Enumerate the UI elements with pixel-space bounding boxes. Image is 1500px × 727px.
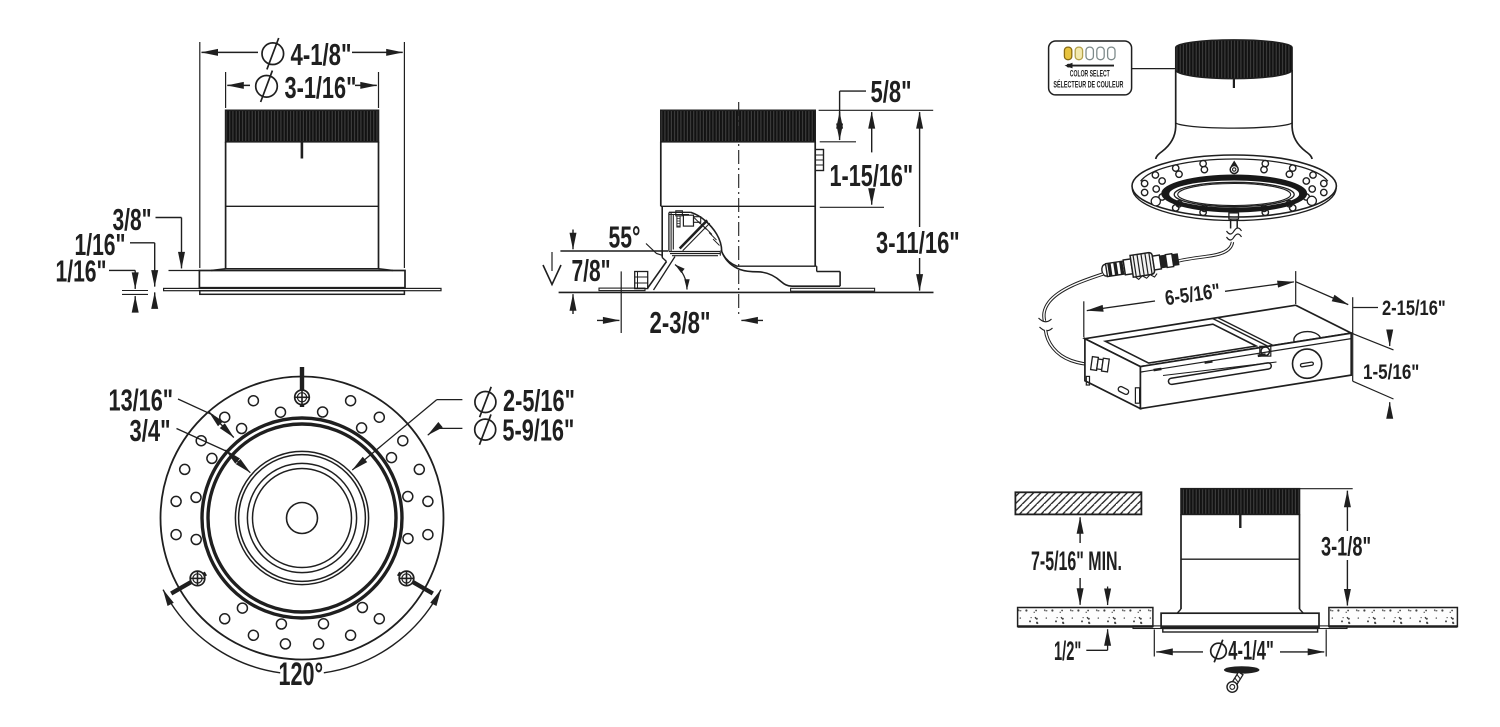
svg-text:3-11/16": 3-11/16" [876, 225, 960, 260]
svg-text:1-5/16": 1-5/16" [1363, 361, 1419, 384]
svg-text:1/16": 1/16" [56, 254, 107, 289]
svg-text:3-1/16": 3-1/16" [285, 70, 357, 105]
svg-text:7/8": 7/8" [572, 253, 611, 288]
svg-text:COLOR SELECT: COLOR SELECT [1070, 69, 1110, 80]
svg-text:4-1/4": 4-1/4" [1228, 636, 1274, 666]
svg-text:3-1/8": 3-1/8" [1321, 532, 1371, 562]
svg-text:4-1/8": 4-1/8" [291, 37, 352, 72]
svg-text:2-15/16": 2-15/16" [1382, 297, 1446, 320]
svg-text:SÉLECTEUR DE COULEUR: SÉLECTEUR DE COULEUR [1053, 80, 1123, 91]
svg-text:7-5/16" MIN.: 7-5/16" MIN. [1031, 546, 1122, 576]
svg-text:120°: 120° [279, 656, 324, 692]
svg-text:55°: 55° [609, 220, 641, 255]
svg-text:5/8": 5/8" [871, 74, 912, 109]
svg-text:3/4": 3/4" [130, 413, 171, 448]
svg-text:2-3/8": 2-3/8" [650, 305, 711, 340]
svg-text:1/2": 1/2" [1054, 636, 1081, 666]
svg-text:1-15/16": 1-15/16" [830, 158, 914, 193]
svg-text:5-9/16": 5-9/16" [502, 413, 574, 448]
